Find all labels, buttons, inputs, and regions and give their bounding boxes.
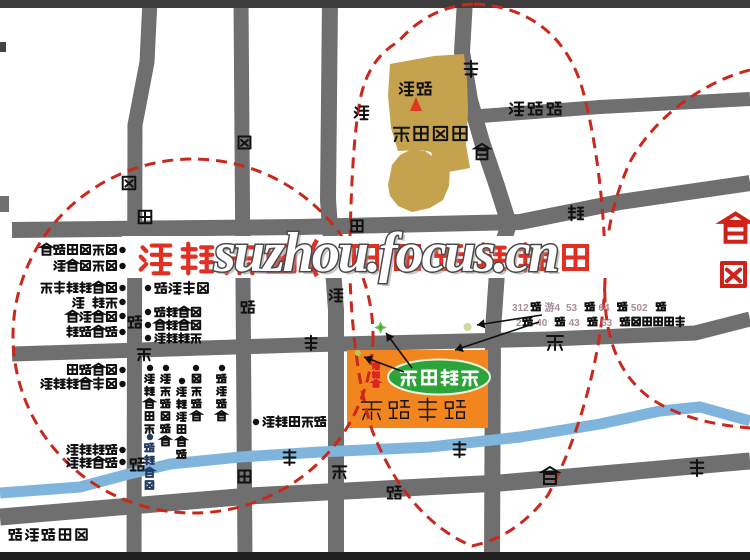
svg-text:63: 63: [601, 318, 613, 329]
svg-text:40: 40: [536, 318, 548, 329]
svg-text:suzhou.focus.cn: suzhou.focus.cn: [213, 222, 557, 284]
svg-text:53: 53: [566, 303, 578, 314]
svg-text:502: 502: [631, 303, 648, 314]
svg-text:312: 312: [512, 303, 529, 314]
svg-text:游4: 游4: [544, 301, 560, 314]
svg-text:64: 64: [598, 303, 610, 314]
svg-text:43: 43: [569, 318, 581, 329]
